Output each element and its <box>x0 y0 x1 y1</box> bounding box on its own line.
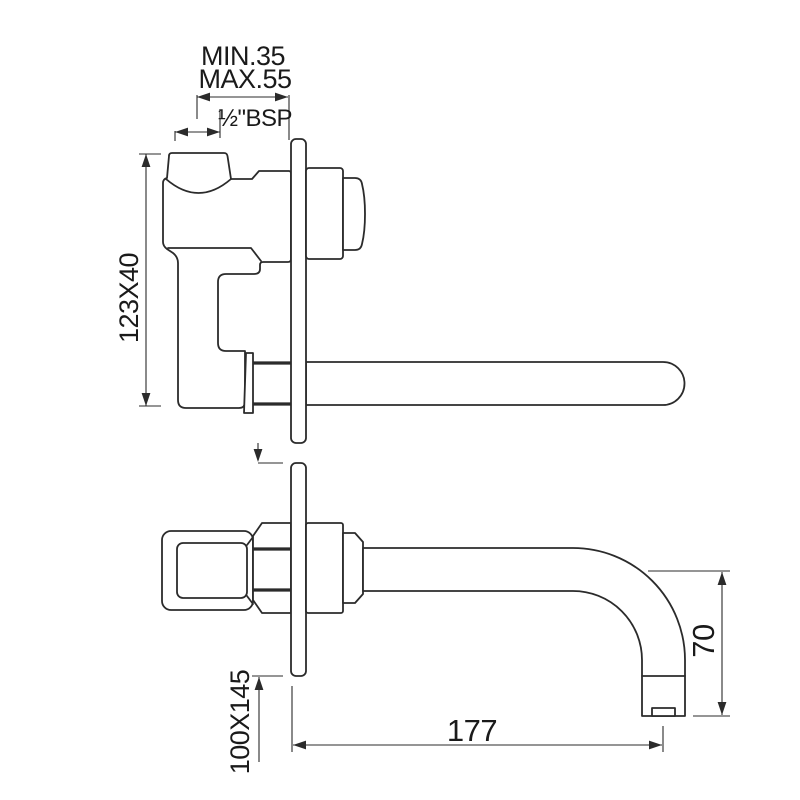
dim-label-spout-reach: 177 <box>447 713 497 748</box>
handle-plan-inner <box>177 543 247 598</box>
wall-face-marker <box>254 443 283 463</box>
dim-body-size: 123X40 <box>114 154 161 406</box>
wall-plate-side <box>291 139 306 443</box>
aerator <box>652 708 675 716</box>
dim-plate-size: 100X145 <box>225 670 283 775</box>
spout-plan <box>363 548 685 716</box>
side-view <box>163 139 685 443</box>
faucet-body-side <box>163 153 291 408</box>
dim-label-body-size: 123X40 <box>114 253 144 343</box>
spout-step-plan <box>343 533 363 603</box>
handle-base-side <box>306 168 343 259</box>
dim-label-max-depth: MAX.55 <box>198 64 291 94</box>
dim-label-spout-drop: 70 <box>686 624 721 658</box>
handle-knob-side <box>343 178 365 250</box>
dim-thread: ½"BSP <box>175 105 292 141</box>
spout-flange-side <box>244 353 253 413</box>
spout-flange-plan <box>306 523 343 613</box>
dim-label-thread: ½"BSP <box>218 105 292 132</box>
faucet-dimension-drawing: MIN.35 MAX.55 ½"BSP 123X40 <box>0 0 800 800</box>
technical-drawing: MIN.35 MAX.55 ½"BSP 123X40 <box>0 0 800 800</box>
dim-spout-reach: 177 <box>292 686 663 752</box>
spout-side <box>306 362 685 405</box>
dim-label-plate-size: 100X145 <box>225 670 255 775</box>
valve-nut-plan <box>253 523 291 613</box>
wall-plate-plan <box>291 463 306 676</box>
